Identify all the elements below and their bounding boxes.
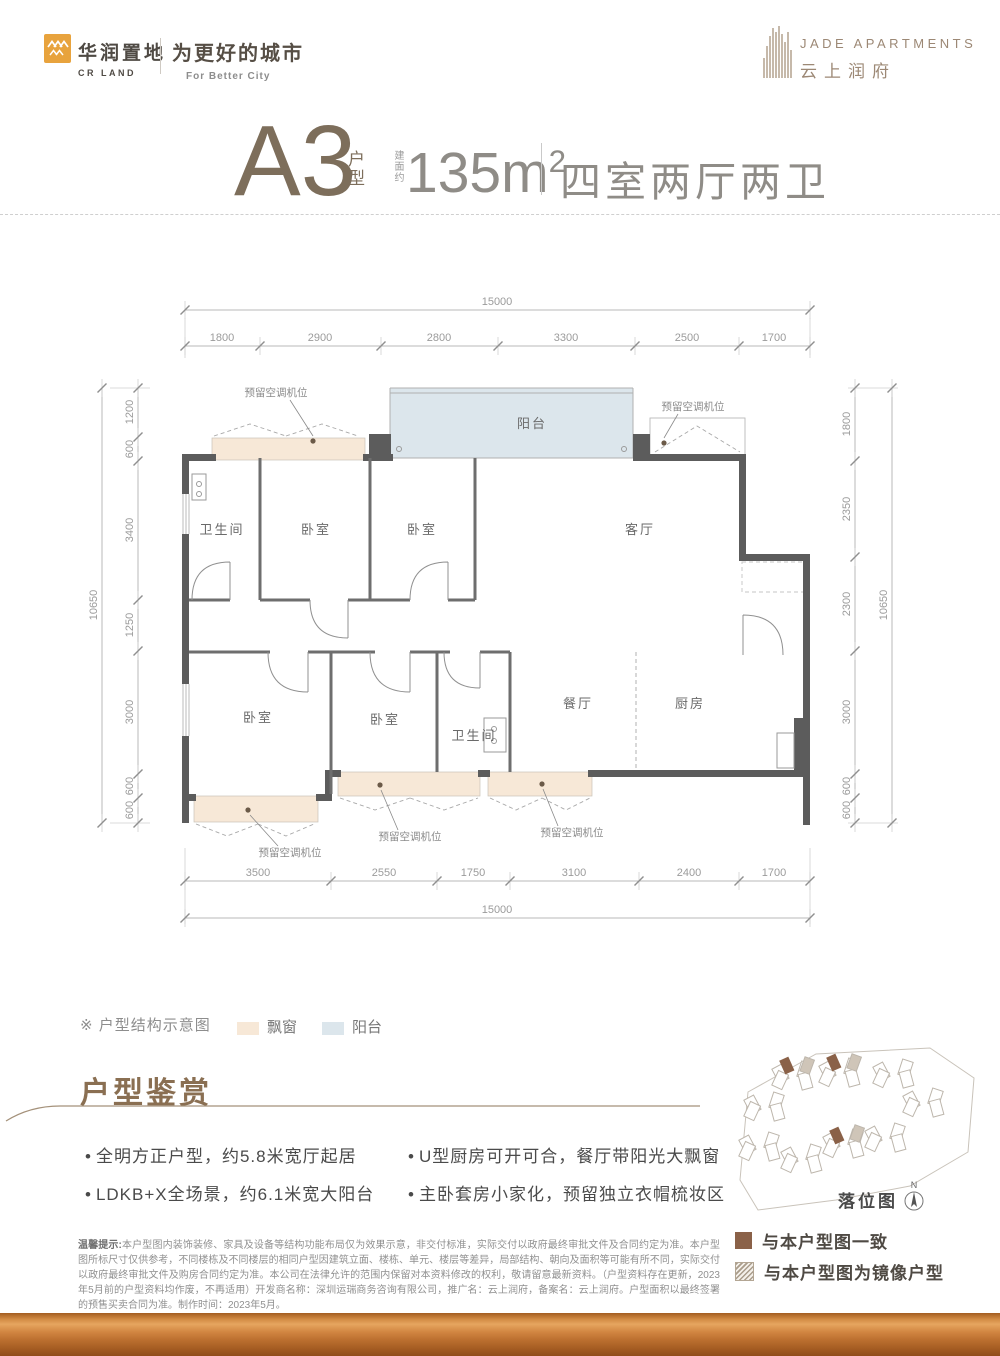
dim-bottom-1: 2550 — [372, 867, 396, 879]
dashed-separator — [0, 214, 1000, 215]
balcony-area — [390, 388, 633, 458]
walls — [182, 434, 810, 825]
dim-top-1: 2900 — [308, 332, 332, 344]
jade-logo-text: JADE APARTMENTS 云上润府 — [800, 36, 976, 82]
flyer-page: 华润置地 CR LAND 为更好的城市 For Better City JADE… — [0, 0, 1000, 1356]
dim-left-0: 1200 — [124, 400, 136, 424]
slogan-en: For Better City — [172, 71, 304, 82]
title-divider — [541, 143, 542, 195]
dim-total-width-top: 15000 — [482, 296, 513, 308]
bay-windows — [194, 424, 592, 836]
ac-label-bottom-left: 预留空调机位 — [259, 846, 322, 859]
features-rule — [0, 1102, 700, 1126]
doors — [192, 562, 783, 692]
dim-top-0: 1800 — [210, 332, 234, 344]
ac-label-bottom-mid: 预留空调机位 — [379, 830, 442, 843]
map-legend-mirror: 与本户型图为镜像户型 — [735, 1259, 944, 1284]
dim-left-2: 3400 — [124, 518, 136, 542]
room-label-bed-4: 卧室 — [370, 712, 400, 727]
cr-land-name: 华润置地 CR LAND — [78, 38, 166, 78]
dim-bottom-4: 2400 — [677, 867, 701, 879]
mirror-unit-swatch — [735, 1262, 754, 1281]
room-label-bed-2: 卧室 — [301, 522, 331, 537]
project-name-cn: 云上润府 — [800, 57, 976, 82]
dim-total-width-bottom: 15000 — [482, 904, 513, 916]
compass: N — [905, 1180, 923, 1210]
room-label-living: 客厅 — [625, 522, 655, 537]
unit-area: 135m2 — [406, 140, 566, 206]
dim-left-6: 600 — [124, 801, 136, 819]
dim-right-1: 2350 — [841, 497, 853, 521]
dim-total-height-right: 10650 — [878, 590, 890, 621]
dim-left-3: 1250 — [124, 613, 136, 637]
compass-north-label: N — [911, 1180, 918, 1190]
room-label-bed-3: 卧室 — [407, 522, 437, 537]
dim-bottom-5: 1700 — [762, 867, 786, 879]
site-map-caption: 落位图 — [838, 1191, 898, 1211]
feature-item-3: •U型厨房可开可合，餐厅带阳光大飘窗 — [408, 1142, 720, 1167]
legend-balcony: 阳台 — [322, 1016, 382, 1040]
dim-top-5: 1700 — [762, 332, 786, 344]
dim-bottom-3: 3100 — [562, 867, 586, 879]
ac-platform-mid-right — [742, 562, 804, 592]
disclaimer: 温馨提示:本户型图内装饰装修、家具及设备等结构功能布局仅为效果示意，非交付标准，… — [78, 1238, 720, 1313]
disclaimer-body: 本户型图内装饰装修、家具及设备等结构功能布局仅为效果示意，非交付标准，实际交付以… — [78, 1240, 720, 1311]
dim-total-height-left: 10650 — [88, 590, 100, 621]
dim-top-3: 3300 — [554, 332, 578, 344]
feature-item-1: •全明方正户型，约5.8米宽厅起居 — [85, 1142, 357, 1167]
dim-right-3: 3000 — [841, 700, 853, 724]
room-label-kitchen: 厨房 — [675, 696, 705, 711]
room-label-balcony: 阳台 — [517, 416, 547, 431]
dim-right-5: 600 — [841, 801, 853, 819]
fixtures — [192, 474, 794, 768]
ac-label-bottom-right: 预留空调机位 — [541, 826, 604, 839]
room-label-bath-2: 卫生间 — [451, 728, 496, 743]
dim-bottom-2: 1750 — [461, 867, 485, 879]
same-unit-label: 与本户型图一致 — [762, 1228, 888, 1253]
ac-label-top-right: 预留空调机位 — [662, 400, 725, 413]
dim-right-0: 1800 — [841, 412, 853, 436]
dim-top-2: 2800 — [427, 332, 451, 344]
dim-left-1: 600 — [124, 440, 136, 458]
cr-land-name-en: CR LAND — [78, 68, 166, 78]
cr-land-logo-icon — [44, 34, 71, 63]
header-divider — [160, 38, 161, 74]
bay-swatch — [237, 1022, 259, 1035]
slogan-cn: 为更好的城市 — [172, 37, 304, 66]
mirror-unit-label: 与本户型图为镜像户型 — [764, 1259, 944, 1284]
bay-label: 飘窗 — [267, 1019, 297, 1036]
room-label-bath-1: 卫生间 — [199, 522, 244, 537]
unit-suffix: 户型 — [342, 150, 367, 188]
dim-right-2: 2300 — [841, 592, 853, 616]
footer-accent-bar — [0, 1313, 1000, 1356]
feature-item-4: •主卧套房小家化，预留独立衣帽梳妆区 — [408, 1180, 725, 1205]
site-map: 落位图 N — [718, 1040, 1000, 1225]
same-unit-swatch — [735, 1232, 752, 1249]
interior-walls — [189, 458, 510, 794]
plan-note: ※ 户型结构示意图 — [80, 1014, 211, 1035]
jade-logo-icon — [762, 24, 794, 83]
project-name-en: JADE APARTMENTS — [800, 36, 976, 51]
balcony-swatch — [322, 1022, 344, 1035]
dim-bottom-0: 3500 — [246, 867, 270, 879]
area-prefix: 建面约 — [390, 150, 405, 183]
cr-land-logo — [44, 34, 71, 68]
dim-top-4: 2500 — [675, 332, 699, 344]
room-label-bed-1: 卧室 — [243, 710, 273, 725]
ac-label-top-left: 预留空调机位 — [245, 386, 308, 399]
legend-bay: 飘窗 — [237, 1016, 297, 1040]
dim-left-5: 600 — [124, 777, 136, 795]
cr-land-name-cn: 华润置地 — [78, 38, 166, 65]
unit-code: A3 — [234, 116, 356, 206]
brand-slogan: 为更好的城市 For Better City — [172, 37, 304, 82]
balcony-label: 阳台 — [352, 1019, 382, 1036]
dim-right-4: 600 — [841, 777, 853, 795]
map-legend-same: 与本户型图一致 — [735, 1228, 888, 1253]
disclaimer-prefix: 温馨提示: — [78, 1240, 122, 1251]
unit-layout: 四室两厅两卫 — [560, 148, 830, 208]
room-label-dining: 餐厅 — [563, 696, 593, 711]
floor-plan: 卫生间 卧室 卧室 客厅 阳台 卧室 卧室 卫生间 餐厅 厨房 预留空调机位 预… — [80, 288, 920, 960]
feature-item-2: •LDKB+X全场景，约6.1米宽大阳台 — [85, 1180, 374, 1205]
dim-left-4: 3000 — [124, 700, 136, 724]
